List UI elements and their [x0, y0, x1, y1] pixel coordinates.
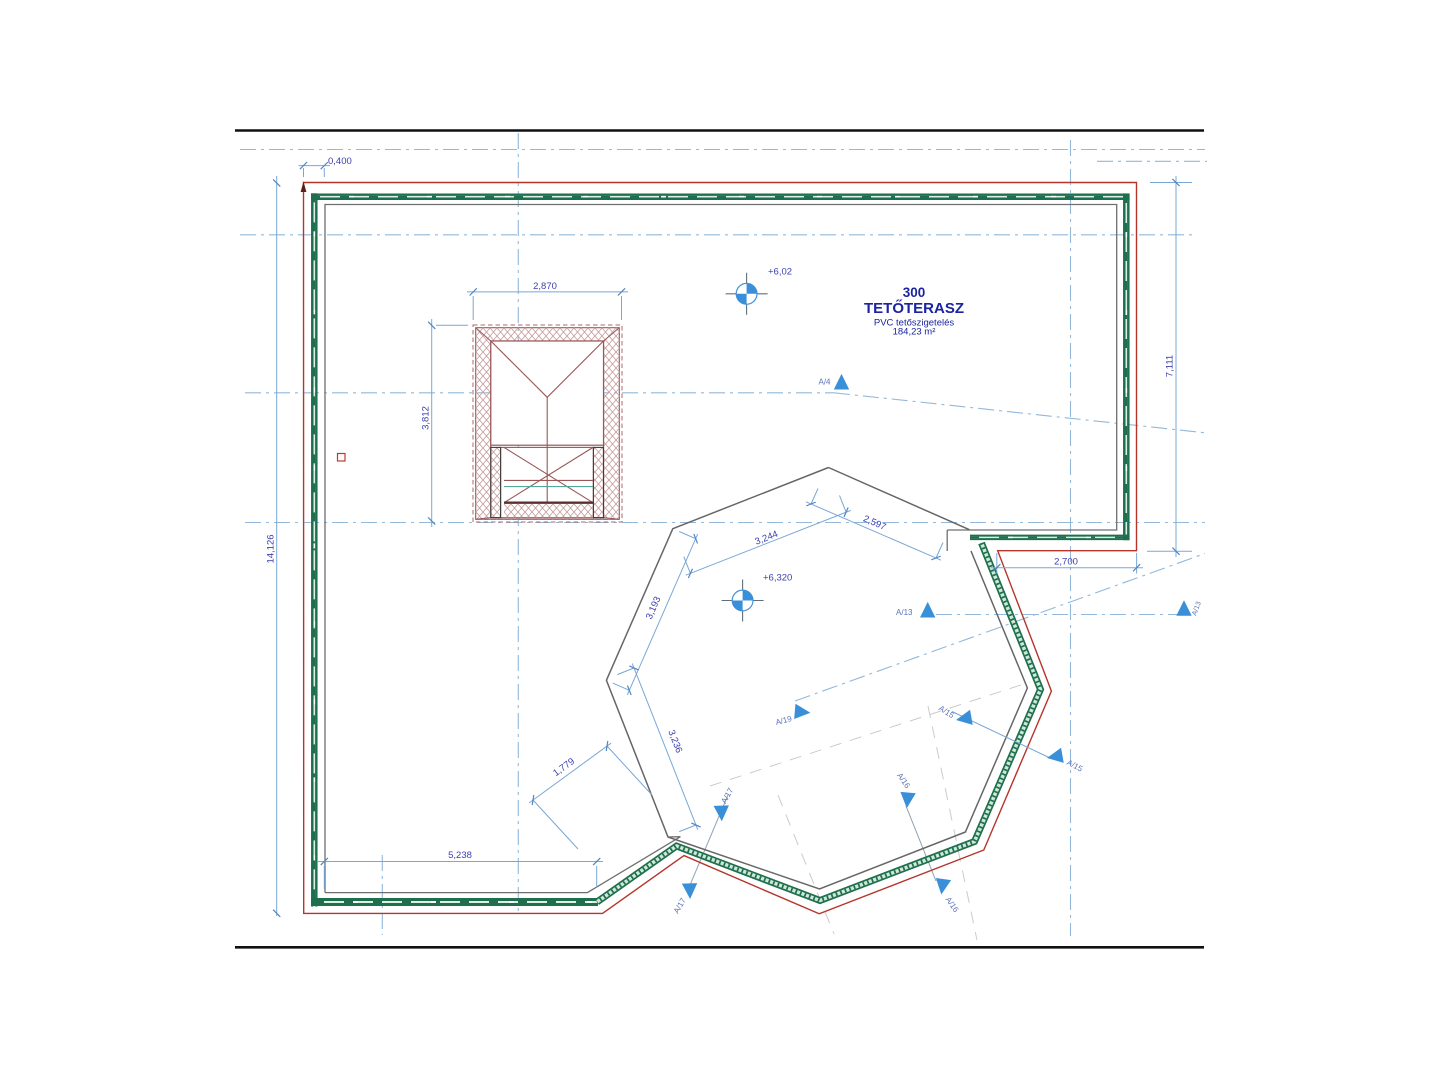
svg-text:A/4: A/4	[818, 378, 831, 387]
svg-text:0,400: 0,400	[328, 156, 352, 167]
svg-text:TETŐTERASZ: TETŐTERASZ	[864, 299, 964, 317]
svg-text:2,700: 2,700	[1054, 557, 1078, 568]
svg-text:2,870: 2,870	[533, 281, 557, 292]
svg-text:A/13: A/13	[896, 608, 913, 617]
svg-text:+6,02: +6,02	[768, 266, 792, 277]
svg-text:300: 300	[903, 285, 926, 300]
svg-text:5,238: 5,238	[448, 850, 472, 861]
svg-text:7,111: 7,111	[1165, 355, 1176, 377]
svg-text:184,23 m²: 184,23 m²	[893, 327, 936, 338]
svg-text:3,812: 3,812	[421, 406, 432, 430]
svg-text:+6,320: +6,320	[763, 572, 792, 583]
svg-text:14,126: 14,126	[266, 534, 277, 563]
